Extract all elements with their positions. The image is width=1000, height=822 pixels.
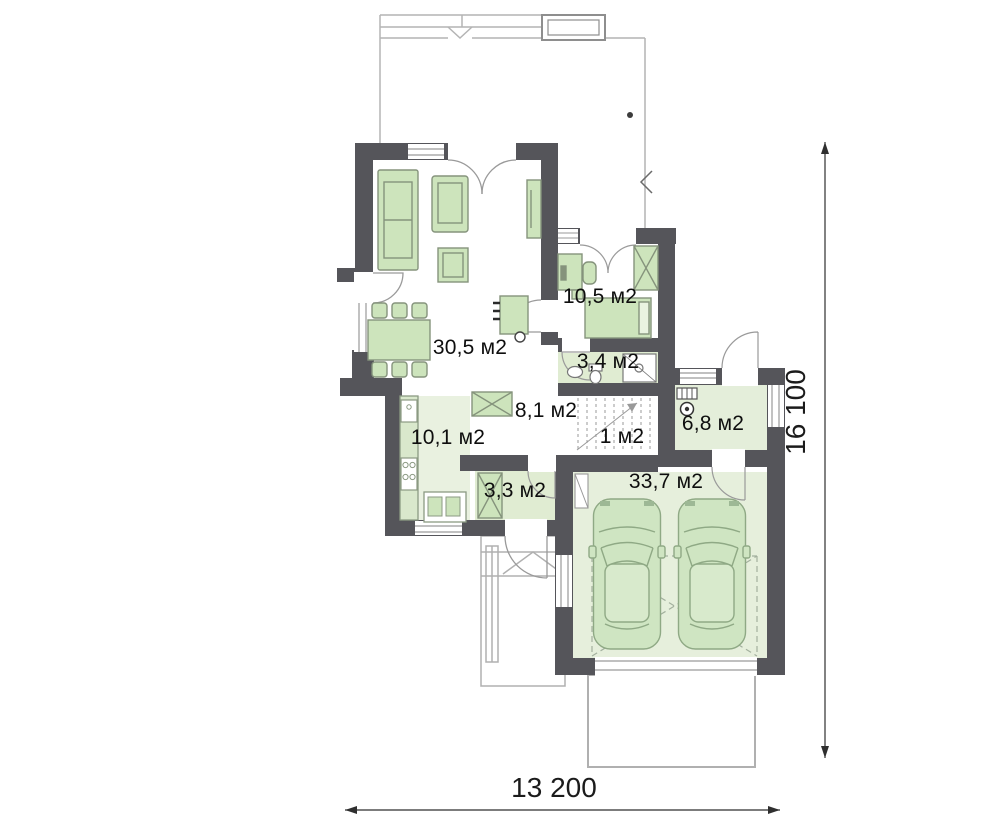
terrace-arrow-icon [641,171,652,193]
room-label-garage: 33,7 м2 [601,470,731,494]
window-icon [558,229,578,243]
door-icon [722,332,758,386]
door-icon [354,272,403,304]
window-icon [415,521,462,535]
window-icon [556,555,572,607]
room-label-vestibule: 3,3 м2 [450,479,580,503]
room-label-bathroom: 3,4 м2 [543,350,673,374]
window-icon [408,144,444,159]
roof-point-mark [627,112,633,118]
driveway [588,675,755,767]
ottoman-icon [438,248,468,282]
dimension-line-bottom [345,806,780,814]
room-label-living: 30,5 м2 [405,336,535,360]
sofa-icon [378,170,418,270]
dimension-depth-label: 16 100 [780,332,820,492]
stove-icon [401,458,417,490]
garage-door-opening [595,657,757,676]
floor-plan-page: 30,5 м2 10,5 м2 3,4 м2 8,1 м2 1 м2 6,8 м… [0,0,1000,822]
entrance-porch [481,536,565,686]
dimension-width-label: 13 200 [454,772,654,804]
wardrobe-icon [634,246,658,290]
armchair-icon [432,176,468,232]
chimney-icon [542,15,605,40]
terrace-outline [380,15,658,231]
room-label-bedroom: 10,5 м2 [535,285,665,309]
window-icon [680,369,716,384]
car-icon [589,499,665,649]
roof-valley-mark [448,27,472,38]
car-icon [674,499,750,649]
room-label-boiler: 6,8 м2 [648,412,778,436]
kitchen-sink-icon [401,400,417,422]
tv-cabinet-icon [527,180,541,238]
room-label-hall: 8,1 м2 [481,399,611,423]
room-label-kitchen: 10,1 м2 [383,426,513,450]
dimension-line-right [821,142,829,758]
